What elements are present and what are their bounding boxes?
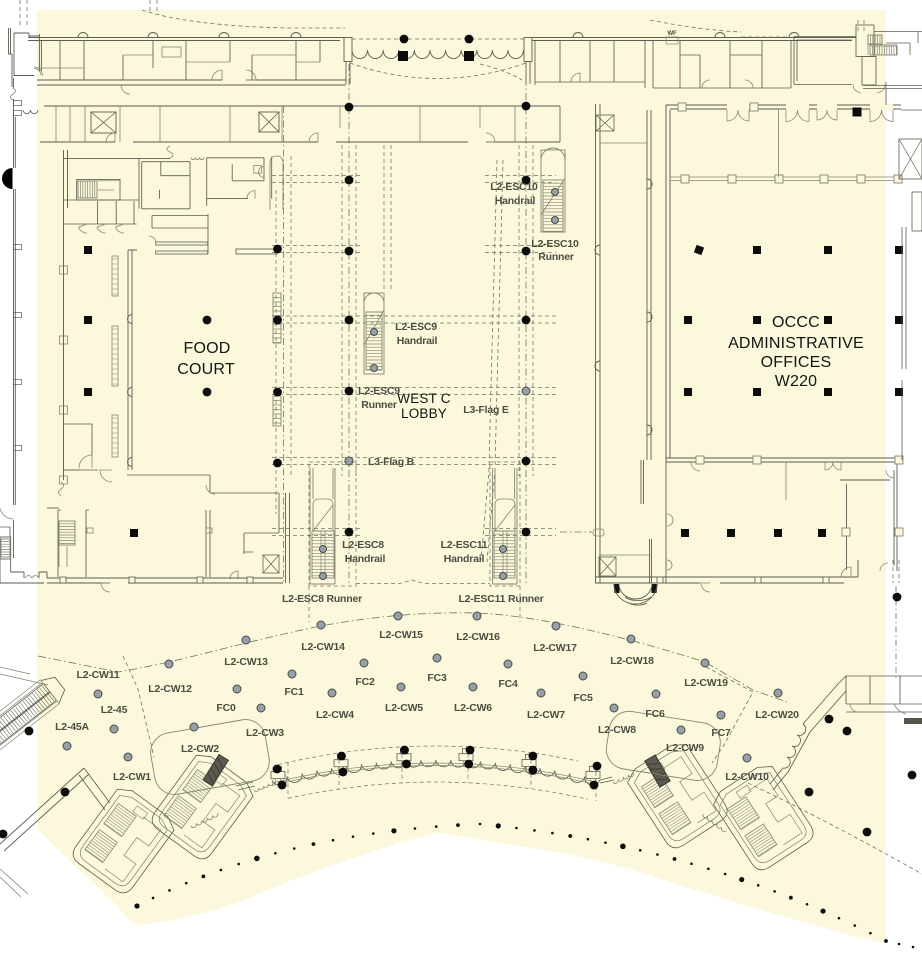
svg-text:L2-CW20: L2-CW20 bbox=[755, 709, 799, 721]
svg-text:FC0: FC0 bbox=[216, 702, 236, 714]
svg-text:L2-CW18: L2-CW18 bbox=[610, 655, 654, 667]
svg-text:L2-ESC10: L2-ESC10 bbox=[490, 181, 538, 193]
svg-text:L3-Flag B: L3-Flag B bbox=[368, 456, 415, 468]
svg-text:L2-CW4: L2-CW4 bbox=[316, 709, 354, 721]
svg-text:Handrail: Handrail bbox=[444, 553, 485, 565]
svg-text:OCCC: OCCC bbox=[772, 314, 820, 331]
svg-text:OFFICES: OFFICES bbox=[761, 354, 832, 371]
svg-text:Runner: Runner bbox=[361, 399, 397, 411]
svg-text:L2-ESC8 Runner: L2-ESC8 Runner bbox=[282, 593, 362, 605]
svg-text:L2-CW5: L2-CW5 bbox=[385, 702, 423, 714]
svg-text:L2-CW12: L2-CW12 bbox=[148, 683, 192, 695]
svg-text:FC7: FC7 bbox=[711, 727, 731, 739]
svg-text:L3-Flag E: L3-Flag E bbox=[463, 404, 509, 416]
svg-text:L2-CW7: L2-CW7 bbox=[527, 709, 565, 721]
svg-text:L2-45: L2-45 bbox=[101, 704, 128, 716]
svg-text:L2-CW8: L2-CW8 bbox=[598, 724, 636, 736]
svg-text:L2-ESC9: L2-ESC9 bbox=[395, 321, 437, 333]
svg-text:L2-CW17: L2-CW17 bbox=[533, 642, 577, 654]
svg-text:L2-ESC11: L2-ESC11 bbox=[441, 539, 488, 551]
svg-text:FC1: FC1 bbox=[284, 686, 304, 698]
svg-text:ADMINISTRATIVE: ADMINISTRATIVE bbox=[728, 335, 864, 352]
svg-text:Runner: Runner bbox=[538, 251, 574, 263]
svg-text:L2-CW3: L2-CW3 bbox=[246, 727, 284, 739]
svg-text:FC3: FC3 bbox=[427, 672, 447, 684]
svg-text:FC5: FC5 bbox=[573, 692, 593, 704]
svg-text:Handrail: Handrail bbox=[397, 335, 438, 347]
svg-text:W220: W220 bbox=[775, 373, 818, 390]
svg-text:L2-CW11: L2-CW11 bbox=[77, 669, 120, 681]
svg-text:L2-CW13: L2-CW13 bbox=[224, 656, 268, 668]
svg-text:Handrail: Handrail bbox=[345, 553, 386, 565]
svg-text:L2-ESC10: L2-ESC10 bbox=[531, 238, 579, 250]
svg-text:LOBBY: LOBBY bbox=[401, 406, 447, 421]
svg-text:FOOD: FOOD bbox=[183, 340, 230, 357]
svg-text:FC6: FC6 bbox=[645, 708, 665, 720]
svg-text:WF: WF bbox=[668, 31, 677, 37]
svg-text:FC2: FC2 bbox=[355, 676, 375, 688]
svg-text:L2-CW9: L2-CW9 bbox=[666, 742, 704, 754]
svg-text:Handrail: Handrail bbox=[495, 195, 536, 207]
svg-text:L2-CW14: L2-CW14 bbox=[301, 641, 345, 653]
svg-text:L2-ESC11 Runner: L2-ESC11 Runner bbox=[458, 593, 543, 605]
svg-text:L2-45A: L2-45A bbox=[55, 721, 89, 733]
svg-text:COURT: COURT bbox=[177, 361, 235, 378]
svg-text:L2-CW2: L2-CW2 bbox=[181, 743, 219, 755]
svg-text:FC4: FC4 bbox=[498, 678, 518, 690]
svg-text:L2-CW1: L2-CW1 bbox=[113, 771, 151, 783]
svg-text:WEST C: WEST C bbox=[397, 391, 451, 406]
svg-text:L2-ESC9: L2-ESC9 bbox=[358, 385, 400, 397]
svg-text:L2-CW6: L2-CW6 bbox=[454, 702, 492, 714]
svg-text:L2-CW15: L2-CW15 bbox=[379, 629, 423, 641]
svg-text:L2-CW16: L2-CW16 bbox=[456, 631, 500, 643]
svg-text:L2-CW10: L2-CW10 bbox=[725, 771, 769, 783]
svg-text:L2-ESC8: L2-ESC8 bbox=[342, 539, 384, 551]
svg-text:L2-CW19: L2-CW19 bbox=[684, 677, 728, 689]
